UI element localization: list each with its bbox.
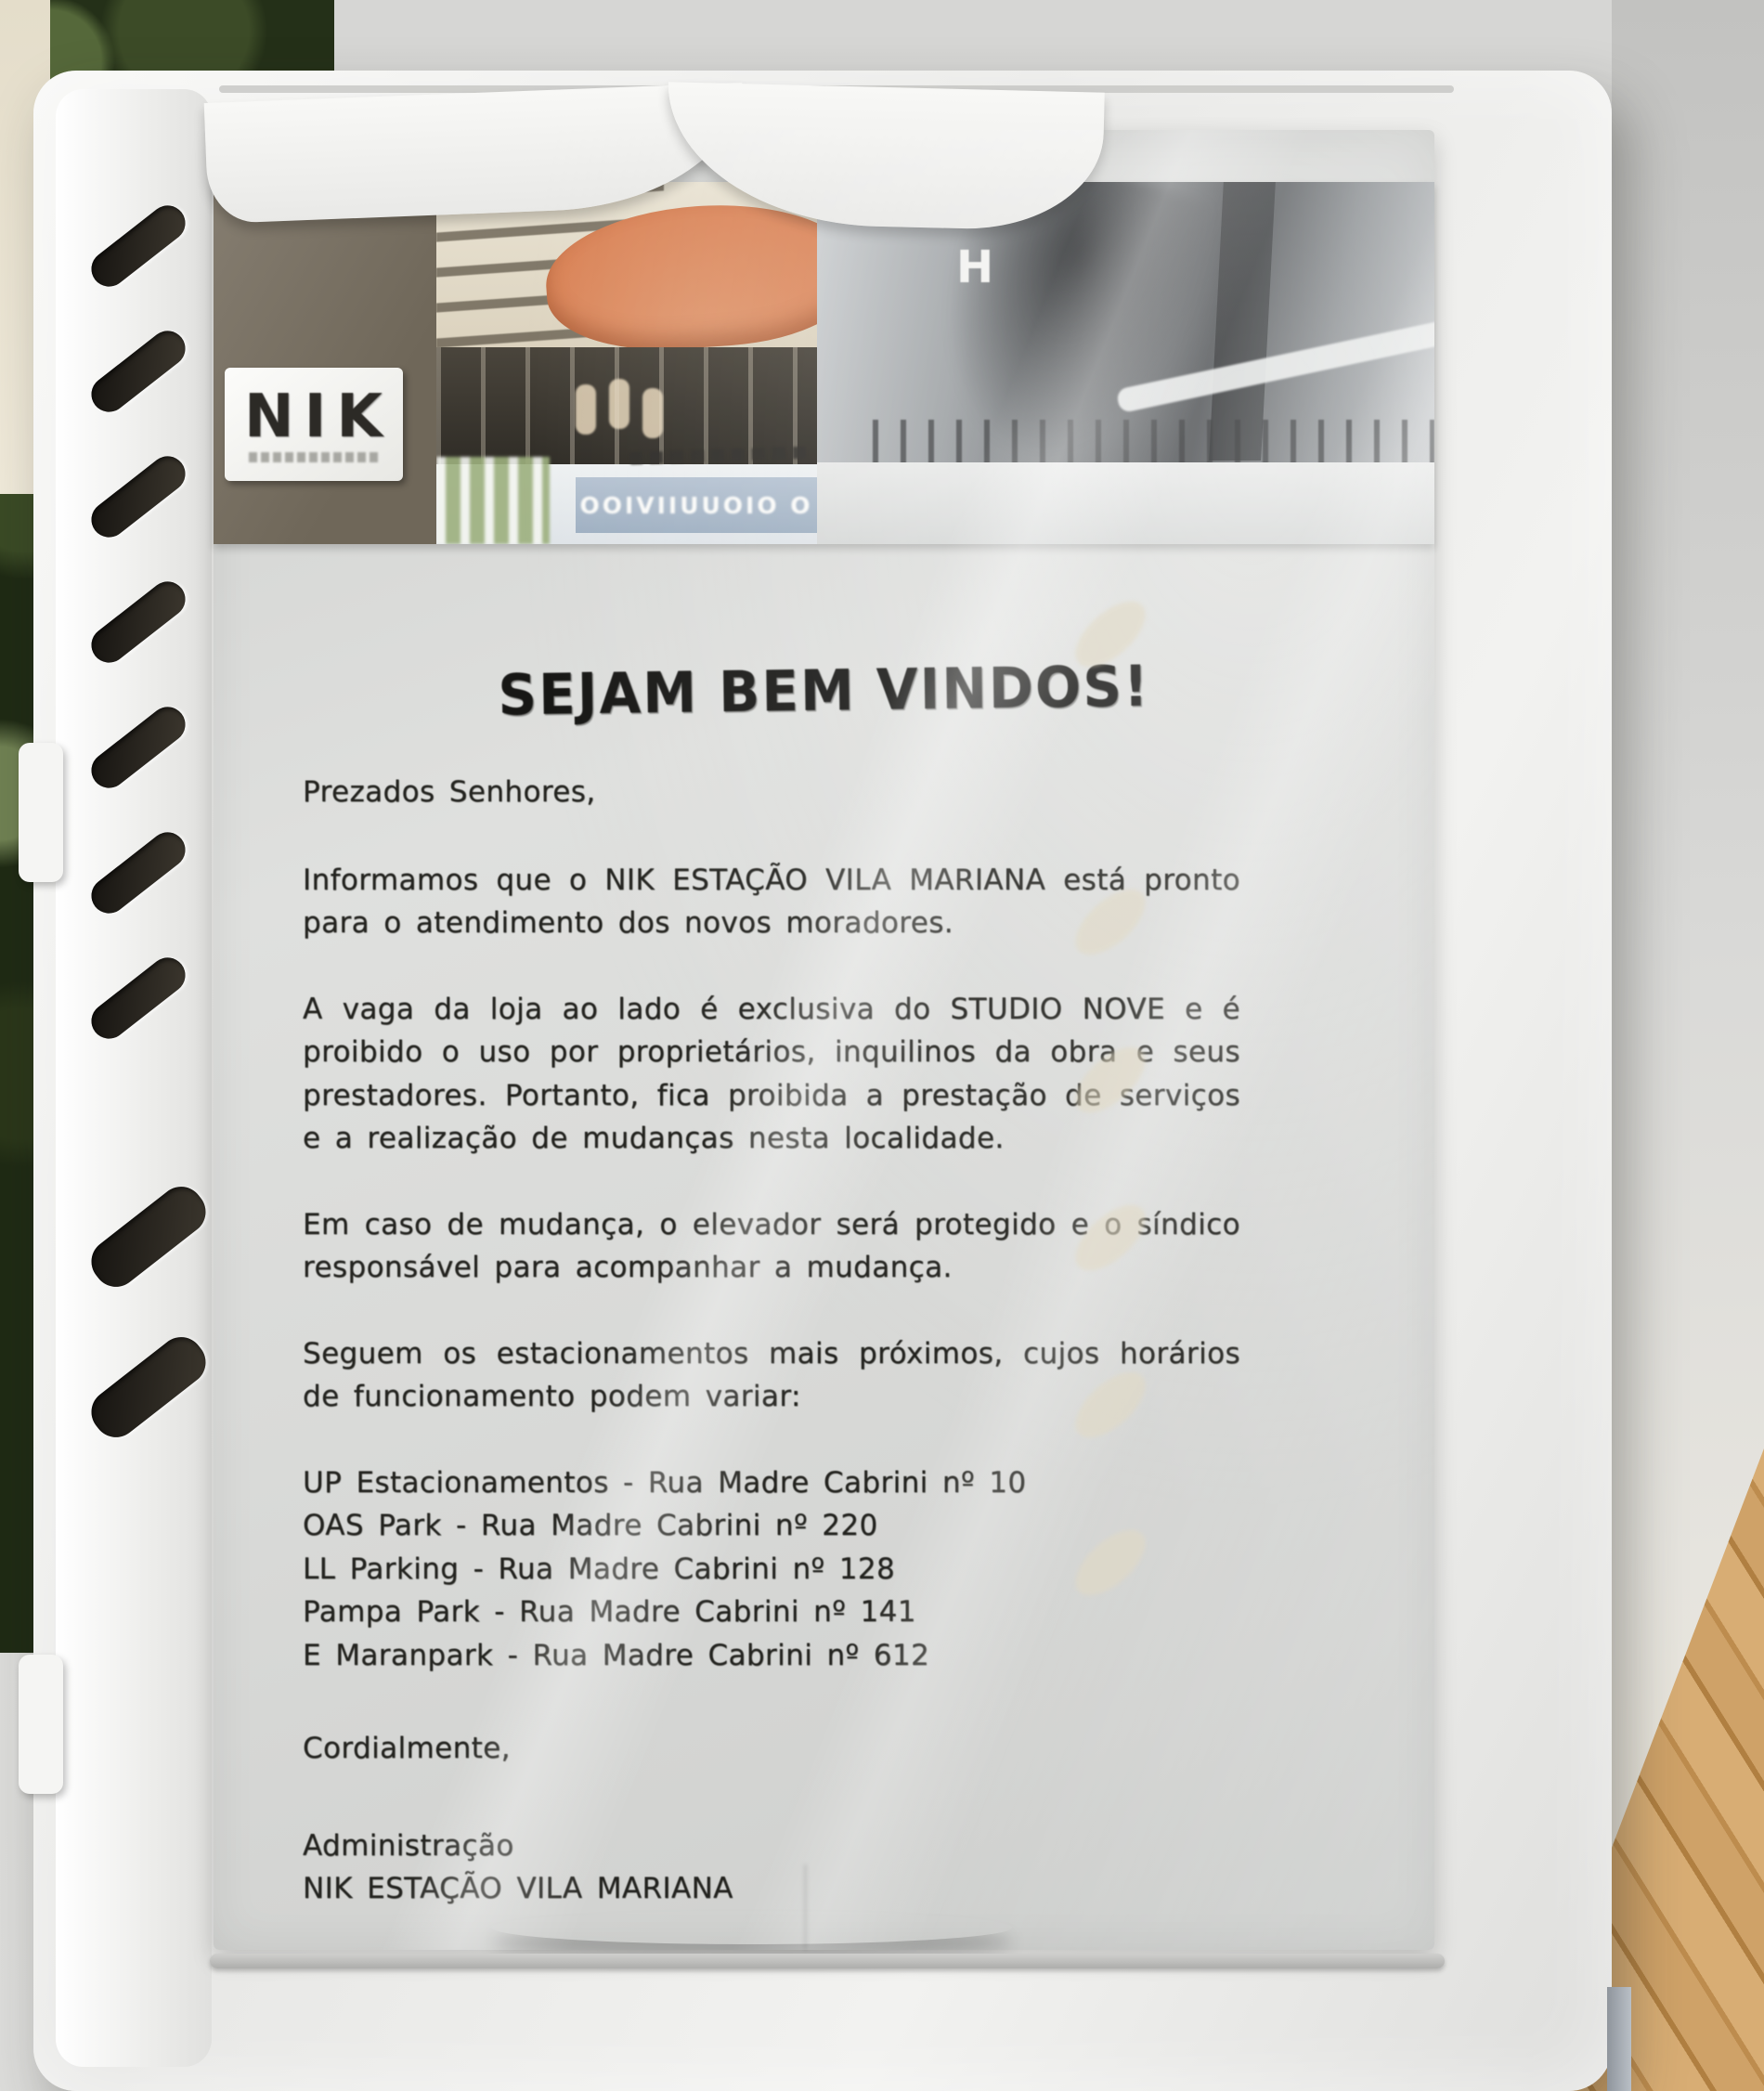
person-silhouette bbox=[642, 388, 663, 438]
parking-list-item: UP Estacionamentos - Rua Madre Cabrini n… bbox=[303, 1461, 1240, 1505]
signature-line: Administração bbox=[303, 1825, 1240, 1868]
vent-slot bbox=[84, 700, 192, 796]
vent-slot bbox=[83, 1328, 214, 1446]
vent-slot bbox=[84, 825, 192, 921]
notice-paper: NIK OOIVIIUUOIO O bbox=[214, 130, 1434, 1950]
person-silhouette bbox=[576, 384, 596, 435]
vent-slot bbox=[84, 575, 192, 670]
parking-list-item: E Maranpark - Rua Madre Cabrini nº 612 bbox=[303, 1634, 1240, 1678]
nik-logo-text: NIK bbox=[235, 387, 393, 447]
person-silhouette bbox=[609, 379, 629, 429]
page-title: SEJAM BEM VINDOS! bbox=[214, 649, 1435, 732]
building-photo: OOIVIIUUOIO O bbox=[436, 182, 817, 544]
letter-closing: Cordialmente, bbox=[303, 1727, 1240, 1771]
stand-clip bbox=[19, 743, 63, 882]
hedge bbox=[436, 457, 550, 544]
sleeve-bottom-rail bbox=[210, 1954, 1445, 1968]
photo-scene: NIK OOIVIIUUOIO O bbox=[0, 0, 1764, 2091]
letter-signature: AdministraçãoNIK ESTAÇÃO VILA MARIANA bbox=[303, 1825, 1240, 1911]
vent-slot bbox=[84, 951, 192, 1046]
storefront-sign-letters: OOIVIIUUOIO O bbox=[579, 492, 812, 519]
fence bbox=[873, 420, 1434, 464]
parking-list-item: OAS Park - Rua Madre Cabrini nº 220 bbox=[303, 1504, 1240, 1548]
signature-line: NIK ESTAÇÃO VILA MARIANA bbox=[303, 1867, 1240, 1911]
vent-slot bbox=[83, 1177, 214, 1295]
stand-left-rail bbox=[56, 89, 212, 2067]
nik-logo-tagline bbox=[249, 452, 379, 462]
stand-clip bbox=[19, 1655, 63, 1794]
nik-logo: NIK bbox=[225, 368, 403, 481]
h-letter: H bbox=[956, 241, 993, 293]
display-stand: NIK OOIVIIUUOIO O bbox=[33, 71, 1612, 2091]
vent-slot bbox=[84, 199, 192, 294]
vent-slot bbox=[84, 324, 192, 420]
logo-panel: NIK bbox=[214, 182, 436, 544]
stand-hinge bbox=[1607, 1987, 1631, 2091]
paper-curl-shadow bbox=[492, 1911, 1012, 1944]
vent-slot bbox=[84, 449, 192, 545]
letter-greeting: Prezados Senhores, bbox=[303, 771, 1240, 814]
deck bbox=[817, 462, 1434, 544]
parking-list-item: Pampa Park - Rua Madre Cabrini nº 141 bbox=[303, 1591, 1240, 1634]
window-photo: H bbox=[817, 182, 1434, 544]
storefront-sign: OOIVIIUUOIO O bbox=[576, 477, 817, 533]
header-photo-collage: NIK OOIVIIUUOIO O bbox=[214, 182, 1434, 544]
